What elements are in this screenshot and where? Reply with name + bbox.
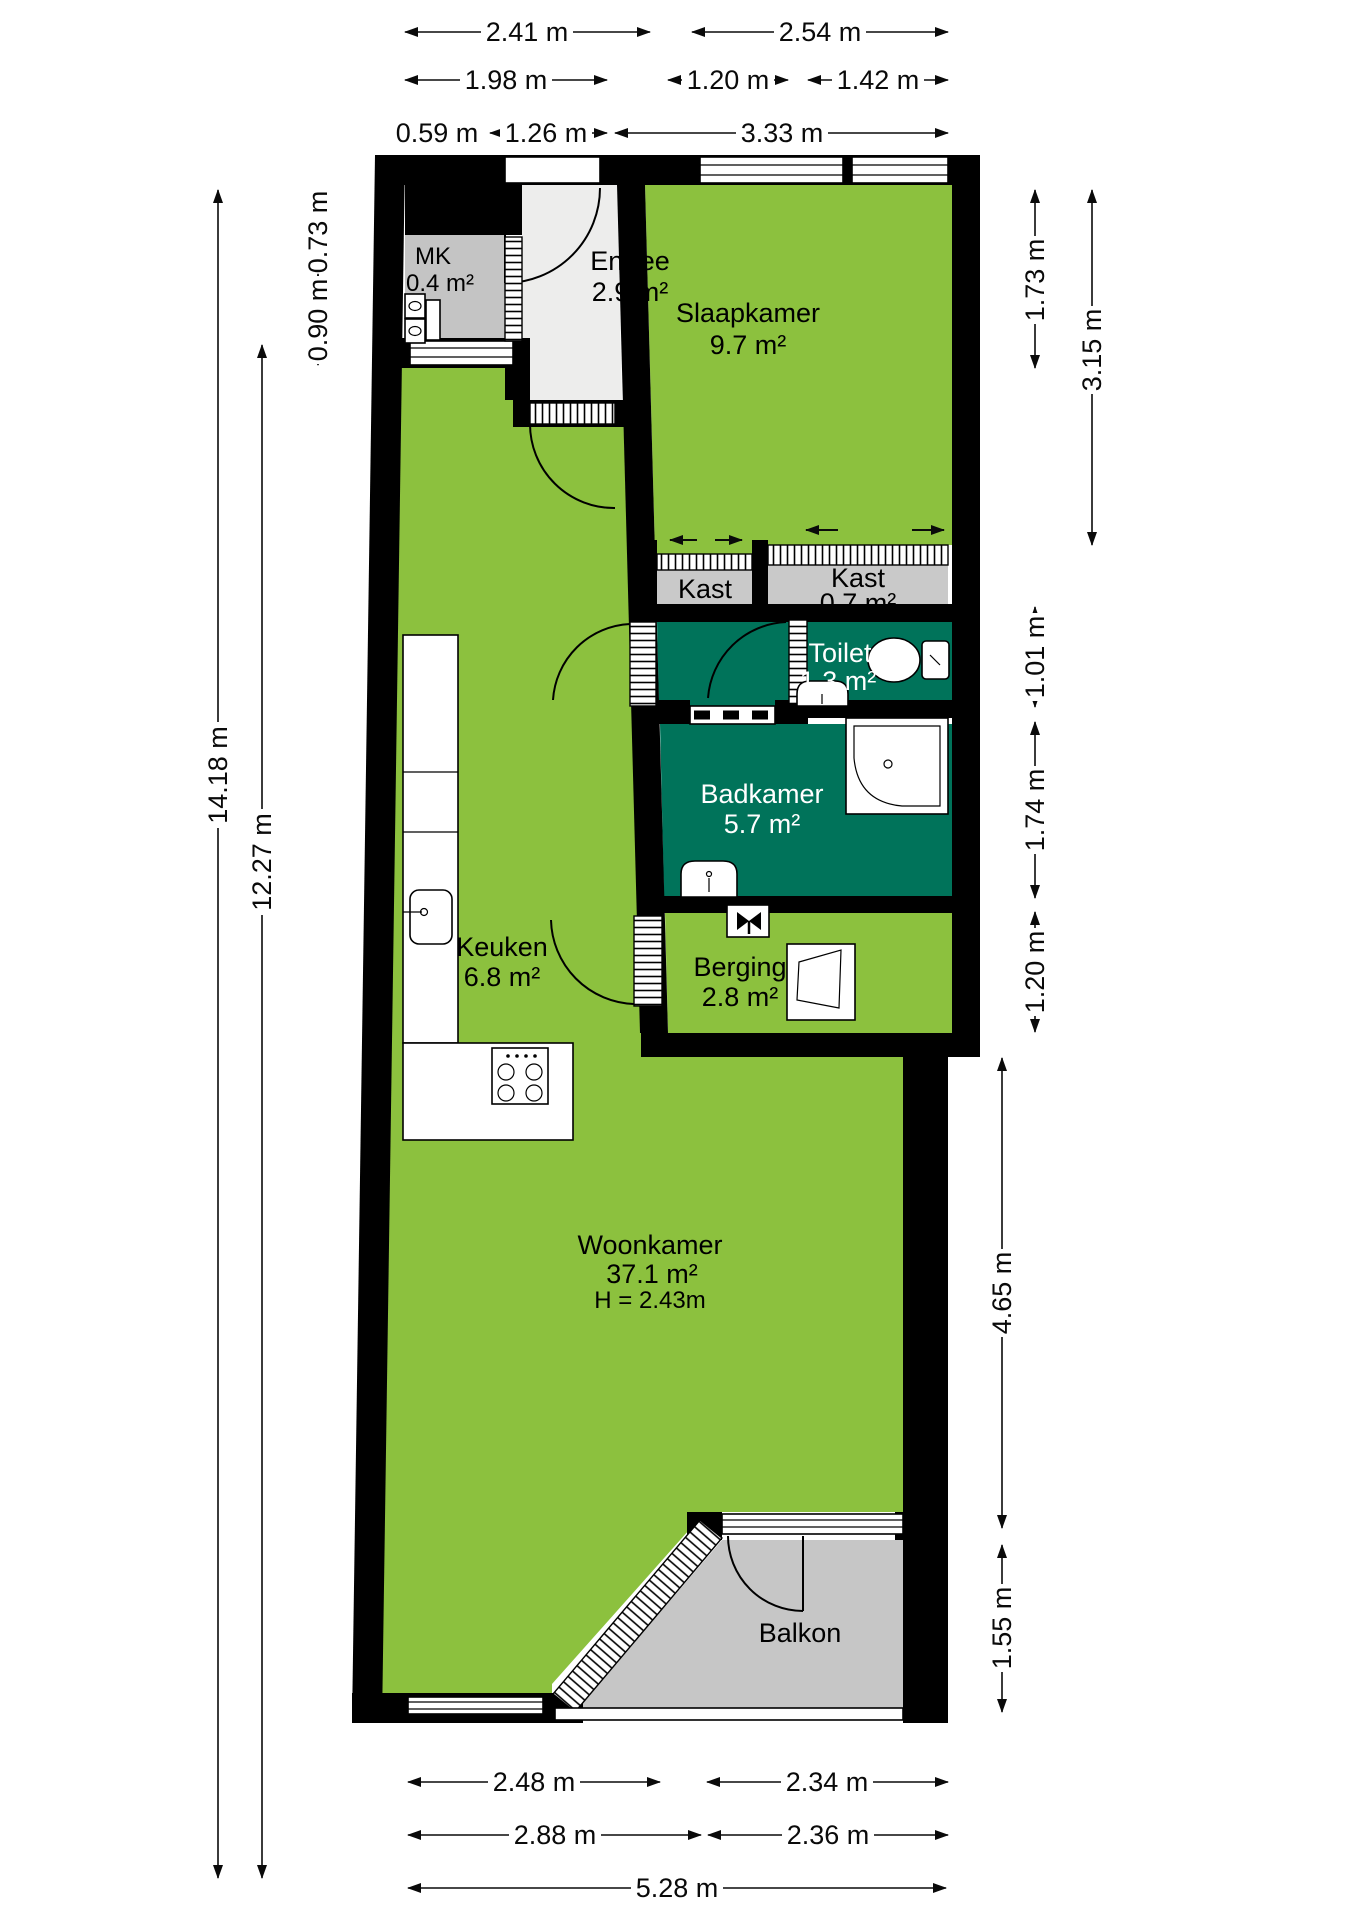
room-entree-area: 2.9 m²: [592, 277, 669, 307]
svg-text:2.36 m: 2.36 m: [787, 1820, 870, 1850]
room-entree-label: Entree: [590, 246, 670, 276]
dim-top-254: 2.54 m: [692, 17, 948, 47]
wall-berging-bottom: [641, 1033, 980, 1057]
badkamer-sliding-door: [690, 706, 775, 724]
svg-text:1.73 m: 1.73 m: [1020, 239, 1050, 322]
svg-text:14.18 m: 14.18 m: [203, 726, 233, 824]
mk-door: [505, 237, 522, 341]
dim-bottom-234: 2.34 m: [707, 1767, 948, 1797]
meter-cabinet-icons: [405, 294, 440, 343]
dim-bottom-288: 2.88 m: [408, 1820, 701, 1850]
washer-tap-icon: [727, 905, 769, 937]
svg-text:12.27 m: 12.27 m: [247, 813, 277, 911]
dim-top-241: 2.41 m: [405, 17, 650, 47]
room-slaapkamer-area: 9.7 m²: [710, 330, 787, 360]
toilet-icon: [868, 638, 949, 682]
stove-icon: [492, 1048, 548, 1104]
room-woonkamer-height: H = 2.43m: [594, 1287, 705, 1314]
svg-text:1.26 m: 1.26 m: [505, 118, 588, 148]
dim-left-073: 0.73 m: [303, 188, 333, 276]
window-woonkamer-bottom: [408, 1697, 543, 1714]
room-toilet-area: 1.3 m²: [800, 666, 877, 696]
room-berging-area: 2.8 m²: [702, 982, 779, 1012]
svg-text:4.65 m: 4.65 m: [987, 1252, 1017, 1335]
room-hall-floor: [657, 622, 789, 707]
svg-text:0.73 m: 0.73 m: [303, 191, 333, 274]
room-slaapkamer-label: Slaapkamer: [676, 298, 820, 328]
shower-icon: [846, 718, 948, 814]
dim-top-198: 1.98 m: [405, 65, 607, 95]
svg-text:1.42 m: 1.42 m: [837, 65, 920, 95]
room-mk-label: MK: [415, 243, 451, 270]
dim-left-1227: 12.27 m: [247, 345, 277, 1878]
closet-small-sliding-door: [657, 554, 752, 570]
dim-bottom-248: 2.48 m: [408, 1767, 660, 1797]
dim-bottom-236: 2.36 m: [708, 1820, 948, 1850]
wall-kast-bottom: [645, 604, 952, 622]
svg-text:2.88 m: 2.88 m: [514, 1820, 597, 1850]
room-balkon-label: Balkon: [759, 1618, 842, 1648]
window-entree-keuken: [410, 341, 513, 365]
room-mk-area: 0.4 m²: [406, 270, 474, 297]
window-slaapkamer-1: [700, 157, 843, 183]
wall-hall-bottom-left: [659, 700, 690, 724]
svg-text:0.59 m: 0.59 m: [396, 118, 479, 148]
svg-text:1.98 m: 1.98 m: [465, 65, 548, 95]
svg-text:1.20 m: 1.20 m: [1020, 931, 1050, 1014]
dim-right-173: 1.73 m: [1020, 190, 1050, 368]
room-toilet-label: Toilet: [808, 638, 872, 668]
dim-top-333: 3.33 m: [615, 118, 948, 148]
wall-right-lower: [903, 1057, 948, 1723]
svg-text:1.55 m: 1.55 m: [987, 1587, 1017, 1670]
closet-kast-sliding-door: [768, 545, 948, 565]
dim-top-142: 1.42 m: [808, 65, 948, 95]
wall-window-mullion: [843, 155, 852, 185]
closet-kast-area: 0.7 m²: [820, 588, 897, 618]
dim-right-120: 1.20 m: [1020, 912, 1050, 1032]
svg-text:2.54 m: 2.54 m: [779, 17, 862, 47]
dim-left-090: 0.90 m: [303, 274, 333, 365]
dim-top-126: 1.26 m: [490, 118, 607, 148]
dim-bottom-528: 5.28 m: [408, 1873, 946, 1903]
dim-right-155: 1.55 m: [987, 1545, 1017, 1712]
svg-text:2.41 m: 2.41 m: [486, 17, 569, 47]
dim-right-174: 1.74 m: [1020, 722, 1050, 898]
badkamer-sink-icon: [681, 861, 737, 897]
room-woonkamer-label: Woonkamer: [577, 1230, 722, 1260]
room-keuken-area: 6.8 m²: [464, 962, 541, 992]
dim-top-059: 0.59 m: [396, 118, 479, 148]
wall-right-upper: [952, 155, 980, 1057]
dim-right-101: 1.01 m: [1020, 607, 1050, 707]
wall-badkamer-bottom: [645, 896, 980, 913]
svg-text:2.34 m: 2.34 m: [786, 1767, 869, 1797]
floorplan-page: MK 0.4 m² Entree 2.9 m² Slaapkamer 9.7 m…: [0, 0, 1358, 1920]
room-woonkamer-area: 37.1 m²: [606, 1259, 698, 1289]
svg-text:1.74 m: 1.74 m: [1020, 769, 1050, 852]
room-badkamer-area: 5.7 m²: [724, 809, 801, 839]
dim-top-120: 1.20 m: [668, 65, 788, 95]
window-slaapkamer-2: [852, 157, 948, 183]
svg-text:1.01 m: 1.01 m: [1020, 616, 1050, 699]
kitchen-sink-icon: [403, 890, 452, 944]
room-keuken-label: Keuken: [456, 932, 548, 962]
dim-right-465: 4.65 m: [987, 1058, 1017, 1528]
svg-text:1.20 m: 1.20 m: [687, 65, 770, 95]
svg-text:2.48 m: 2.48 m: [493, 1767, 576, 1797]
svg-text:3.33 m: 3.33 m: [741, 118, 824, 148]
room-slaapkamer-floor: [645, 185, 952, 554]
room-badkamer-label: Badkamer: [700, 779, 823, 809]
cabinet-icon: [787, 944, 855, 1020]
dim-left-1418: 14.18 m: [203, 190, 233, 1878]
floorplan-drawing: MK 0.4 m² Entree 2.9 m² Slaapkamer 9.7 m…: [0, 0, 1358, 1920]
closet-small-label: Kast: [678, 574, 733, 604]
svg-text:5.28 m: 5.28 m: [636, 1873, 719, 1903]
balkon-railing: [555, 1708, 903, 1720]
wall-top-gap: [597, 155, 702, 185]
room-berging-label: Berging: [693, 952, 786, 982]
svg-text:3.15 m: 3.15 m: [1077, 309, 1107, 392]
svg-text:0.90 m: 0.90 m: [303, 279, 333, 362]
dim-right-315: 3.15 m: [1077, 190, 1107, 545]
